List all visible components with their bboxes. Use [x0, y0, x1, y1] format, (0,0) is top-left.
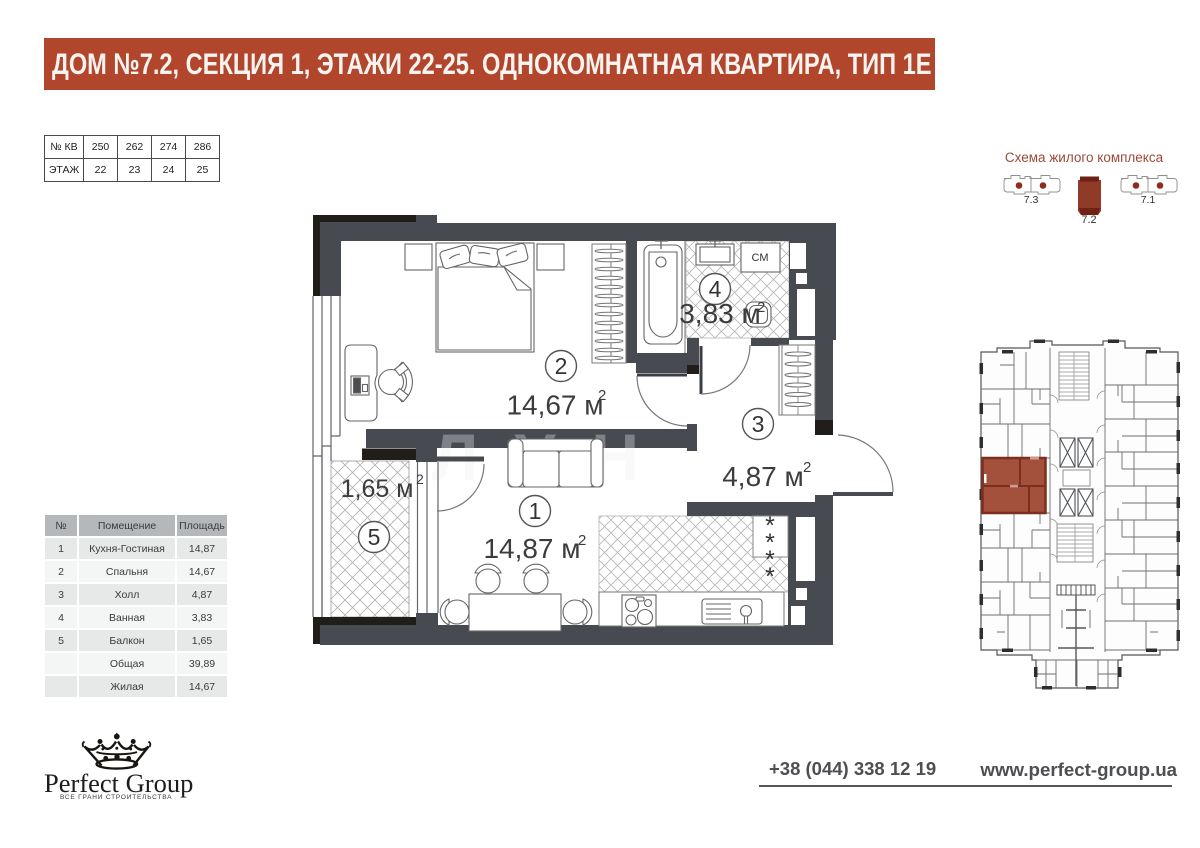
svg-text:2: 2: [757, 299, 765, 316]
svg-text:2: 2: [555, 353, 568, 379]
svg-text:14,87 м: 14,87 м: [483, 533, 580, 564]
svg-text:14,67 м: 14,67 м: [506, 390, 603, 421]
svg-text:2: 2: [803, 459, 811, 476]
svg-text:2: 2: [578, 532, 586, 549]
svg-text:1: 1: [529, 498, 542, 524]
svg-text:2: 2: [598, 387, 606, 404]
svg-text:5: 5: [368, 524, 381, 550]
svg-text:7.3: 7.3: [1024, 194, 1039, 206]
svg-text:7.1: 7.1: [1141, 194, 1156, 206]
svg-text:*: *: [765, 563, 775, 591]
svg-text:4,87 м: 4,87 м: [722, 461, 804, 492]
svg-text:2: 2: [416, 471, 424, 487]
svg-text:3: 3: [752, 411, 765, 437]
svg-text:7.2: 7.2: [1081, 214, 1096, 226]
svg-text:СМ: СМ: [752, 252, 769, 264]
svg-text:3,83 м: 3,83 м: [679, 298, 761, 329]
svg-text:1,65 м: 1,65 м: [341, 475, 414, 503]
